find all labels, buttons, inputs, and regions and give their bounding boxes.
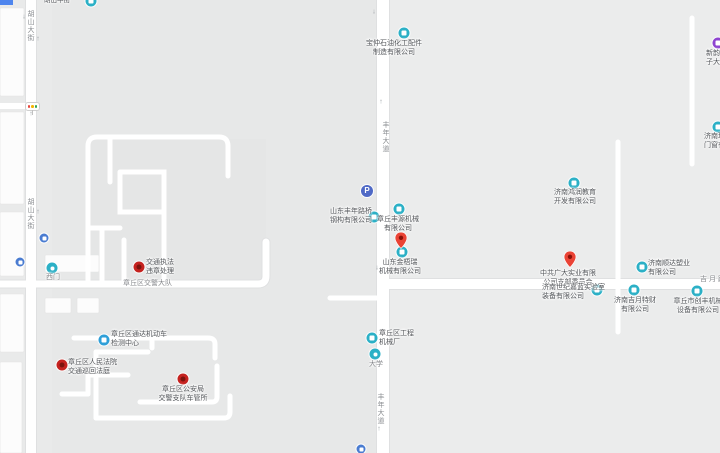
road-label-fengnian-avenue-bottom: 丰年大道: [375, 393, 385, 425]
road-label-jiyue-road: 吉月路: [700, 276, 720, 285]
poi-label[interactable]: 章丘市创丰机械设备有限公司: [674, 298, 720, 315]
poi-police-icon[interactable]: [178, 374, 189, 385]
poi-label[interactable]: 山东金梧瑞机械有限公司: [379, 259, 421, 276]
one-way-arrow: ↓: [372, 9, 376, 16]
map-pin-icon[interactable]: [395, 232, 408, 249]
bus-stop-icon[interactable]: [40, 234, 49, 243]
poi-business-icon[interactable]: [394, 204, 405, 215]
poi-label[interactable]: 济南世纪嘉蓝实验室装备有限公司: [542, 284, 605, 301]
poi-label[interactable]: 章丘区公安局交警支队车管所: [159, 386, 208, 403]
one-way-arrow: ↑: [377, 426, 381, 433]
bus-stop-icon[interactable]: [357, 445, 366, 453]
area-label-traffic-brigade: 章丘区交警大队: [123, 280, 172, 289]
poi-label[interactable]: 济南鸿润教育开发有限公司: [554, 189, 596, 206]
poi-business-icon[interactable]: [629, 285, 640, 296]
poi-label[interactable]: 新韵电子大厦: [706, 50, 720, 67]
road-label-hushan-street-mid: 胡山大街: [25, 198, 35, 230]
poi-business-icon[interactable]: [637, 262, 648, 273]
poi-business-icon[interactable]: [713, 122, 720, 133]
one-way-arrow: ↑: [379, 99, 383, 106]
poi-label[interactable]: 济南吉月特财有限公司: [614, 297, 656, 314]
poi-enforcement-icon[interactable]: [134, 262, 145, 273]
road-label-top-edge: 胡山中街: [44, 0, 70, 6]
poi-label[interactable]: 济南顺达塑业有限公司: [648, 260, 690, 277]
poi-business-icon[interactable]: [367, 333, 378, 344]
road-label-hushan-street-top: 胡山大街: [25, 10, 35, 42]
parking-icon[interactable]: P: [361, 185, 373, 197]
poi-inspection-icon[interactable]: [99, 335, 110, 346]
gate-label[interactable]: 西门: [46, 274, 60, 283]
poi-label[interactable]: 山东丰年路桥钢构有限公司: [330, 208, 372, 225]
university-marker-icon[interactable]: [370, 349, 381, 360]
poi-business-icon[interactable]: [399, 28, 410, 39]
one-way-arrow: ↑: [36, 36, 40, 43]
poi-business-icon[interactable]: [692, 286, 703, 297]
poi-label[interactable]: 济南理门窗有限: [704, 133, 720, 150]
map-base-layer: [0, 0, 720, 453]
poi-label[interactable]: 章丘区工程机械厂: [379, 330, 414, 347]
bus-stop-icon[interactable]: [16, 258, 25, 267]
gate-marker-icon[interactable]: [47, 263, 58, 274]
poi-building-icon[interactable]: [713, 38, 720, 49]
university-label[interactable]: 大学: [369, 361, 383, 370]
poi-business-icon[interactable]: [569, 178, 580, 189]
one-way-arrow: ↓: [22, 14, 26, 21]
map-canvas[interactable]: 胡山中街 胡山大街 胡山大街 丰年大道 丰年大道 吉月路 章丘区交警大队 ↓ ↑…: [0, 0, 720, 453]
poi-label[interactable]: 章丘丰源机械有限公司: [377, 216, 419, 233]
map-region-right: [389, 0, 720, 453]
map-pin-icon[interactable]: [564, 251, 577, 268]
poi-label[interactable]: 交通执法违章处理: [146, 259, 174, 276]
map-edge-artifact: [0, 0, 13, 5]
traffic-light-icon: [25, 102, 40, 111]
one-way-arrow: ↑: [36, 209, 40, 216]
poi-label[interactable]: 宝仲石油化工配件制造有限公司: [366, 40, 422, 57]
road-label-fengnian-avenue-top: 丰年大道: [380, 121, 390, 153]
map-compound-area: [90, 139, 266, 282]
poi-court-icon[interactable]: [57, 360, 68, 371]
poi-label[interactable]: 章丘区人民法院交通巡回法庭: [68, 359, 117, 376]
poi-label[interactable]: 章丘区通达机动车检测中心: [111, 331, 167, 348]
